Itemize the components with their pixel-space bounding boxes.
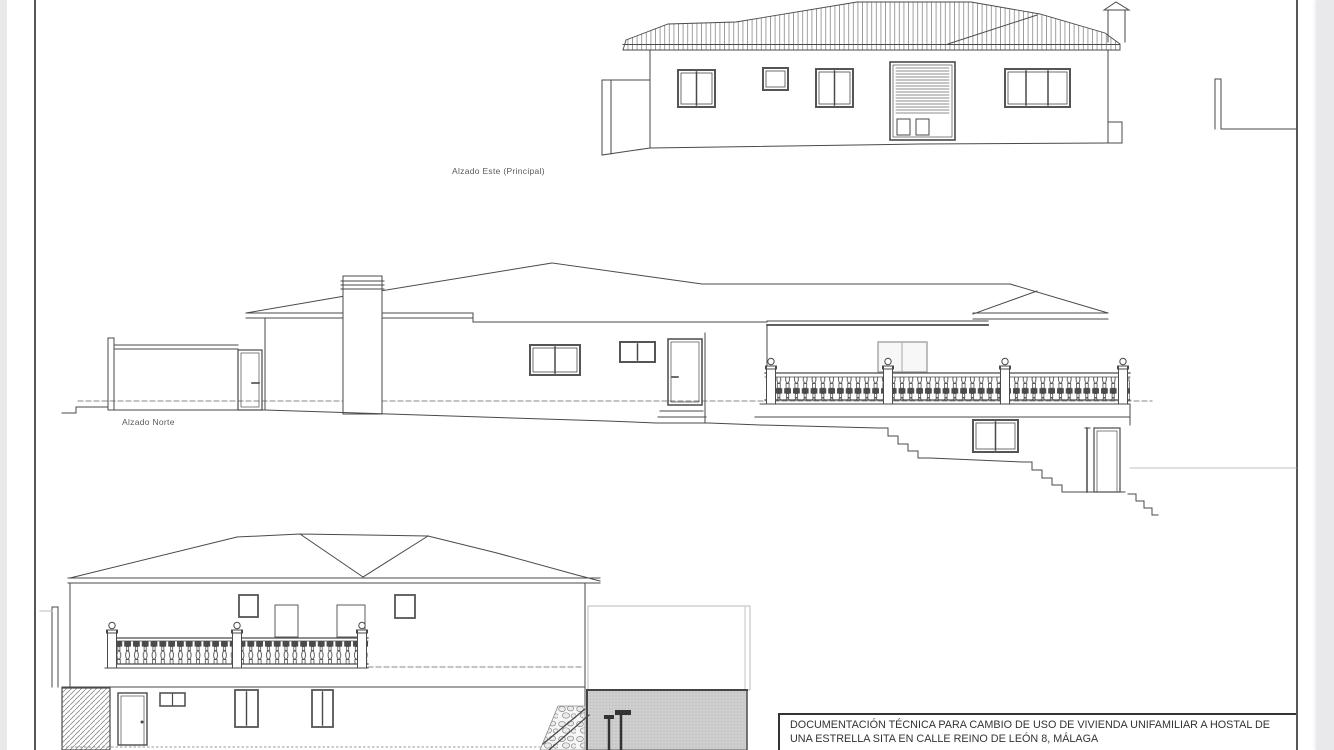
east-window-right <box>1005 69 1070 107</box>
rear-window-1 <box>235 690 258 727</box>
background-wall <box>588 606 750 690</box>
rear-roof <box>68 534 600 583</box>
east-window-left <box>678 70 715 107</box>
elevations-canvas <box>0 0 1334 750</box>
rear-balustrade <box>62 622 585 687</box>
rear-elevation-drawing <box>40 534 750 750</box>
rear-door <box>118 693 147 745</box>
title-block-line1: DOCUMENTACIÓN TÉCNICA PARA CAMBIO DE USO… <box>790 719 1296 733</box>
north-window-left <box>530 345 580 375</box>
rear-right-section <box>540 606 750 750</box>
north-elevation-drawing <box>62 263 1296 515</box>
north-basement-window <box>973 420 1018 452</box>
north-terrain-steps <box>760 425 1296 515</box>
retaining-wall <box>587 690 747 750</box>
rear-window-2 <box>312 690 333 727</box>
east-elevation-drawing <box>602 2 1296 155</box>
east-window-mid <box>816 69 853 107</box>
title-block: DOCUMENTACIÓN TÉCNICA PARA CAMBIO DE USO… <box>778 713 1296 750</box>
east-chimney <box>1104 2 1129 143</box>
garage-door <box>62 688 110 750</box>
east-louvered-door <box>890 62 955 140</box>
north-entrance-door <box>668 339 702 405</box>
title-block-line2: UNA ESTRELLA SITA EN CALLE REINO DE LEÓN… <box>790 733 1296 747</box>
east-elevation-label: Alzado Este (Principal) <box>452 166 545 176</box>
north-basement-door <box>1085 428 1120 492</box>
east-side-wall <box>1215 79 1296 129</box>
north-balustrade <box>755 358 1130 425</box>
north-window-small <box>620 342 655 362</box>
rear-small-window <box>160 693 185 706</box>
east-window-small <box>763 68 788 90</box>
north-chimney <box>341 276 384 414</box>
rear-ground-floor <box>40 607 540 750</box>
north-boundary-fence <box>62 338 265 413</box>
north-elevation-label: Alzado Norte <box>122 417 175 427</box>
north-facade <box>265 318 767 425</box>
drawing-sheet: { "sheet": { "type": "architectural-elev… <box>0 0 1334 750</box>
east-facade <box>602 50 1122 155</box>
rear-upper-windows <box>239 595 415 637</box>
east-roof <box>623 2 1120 50</box>
